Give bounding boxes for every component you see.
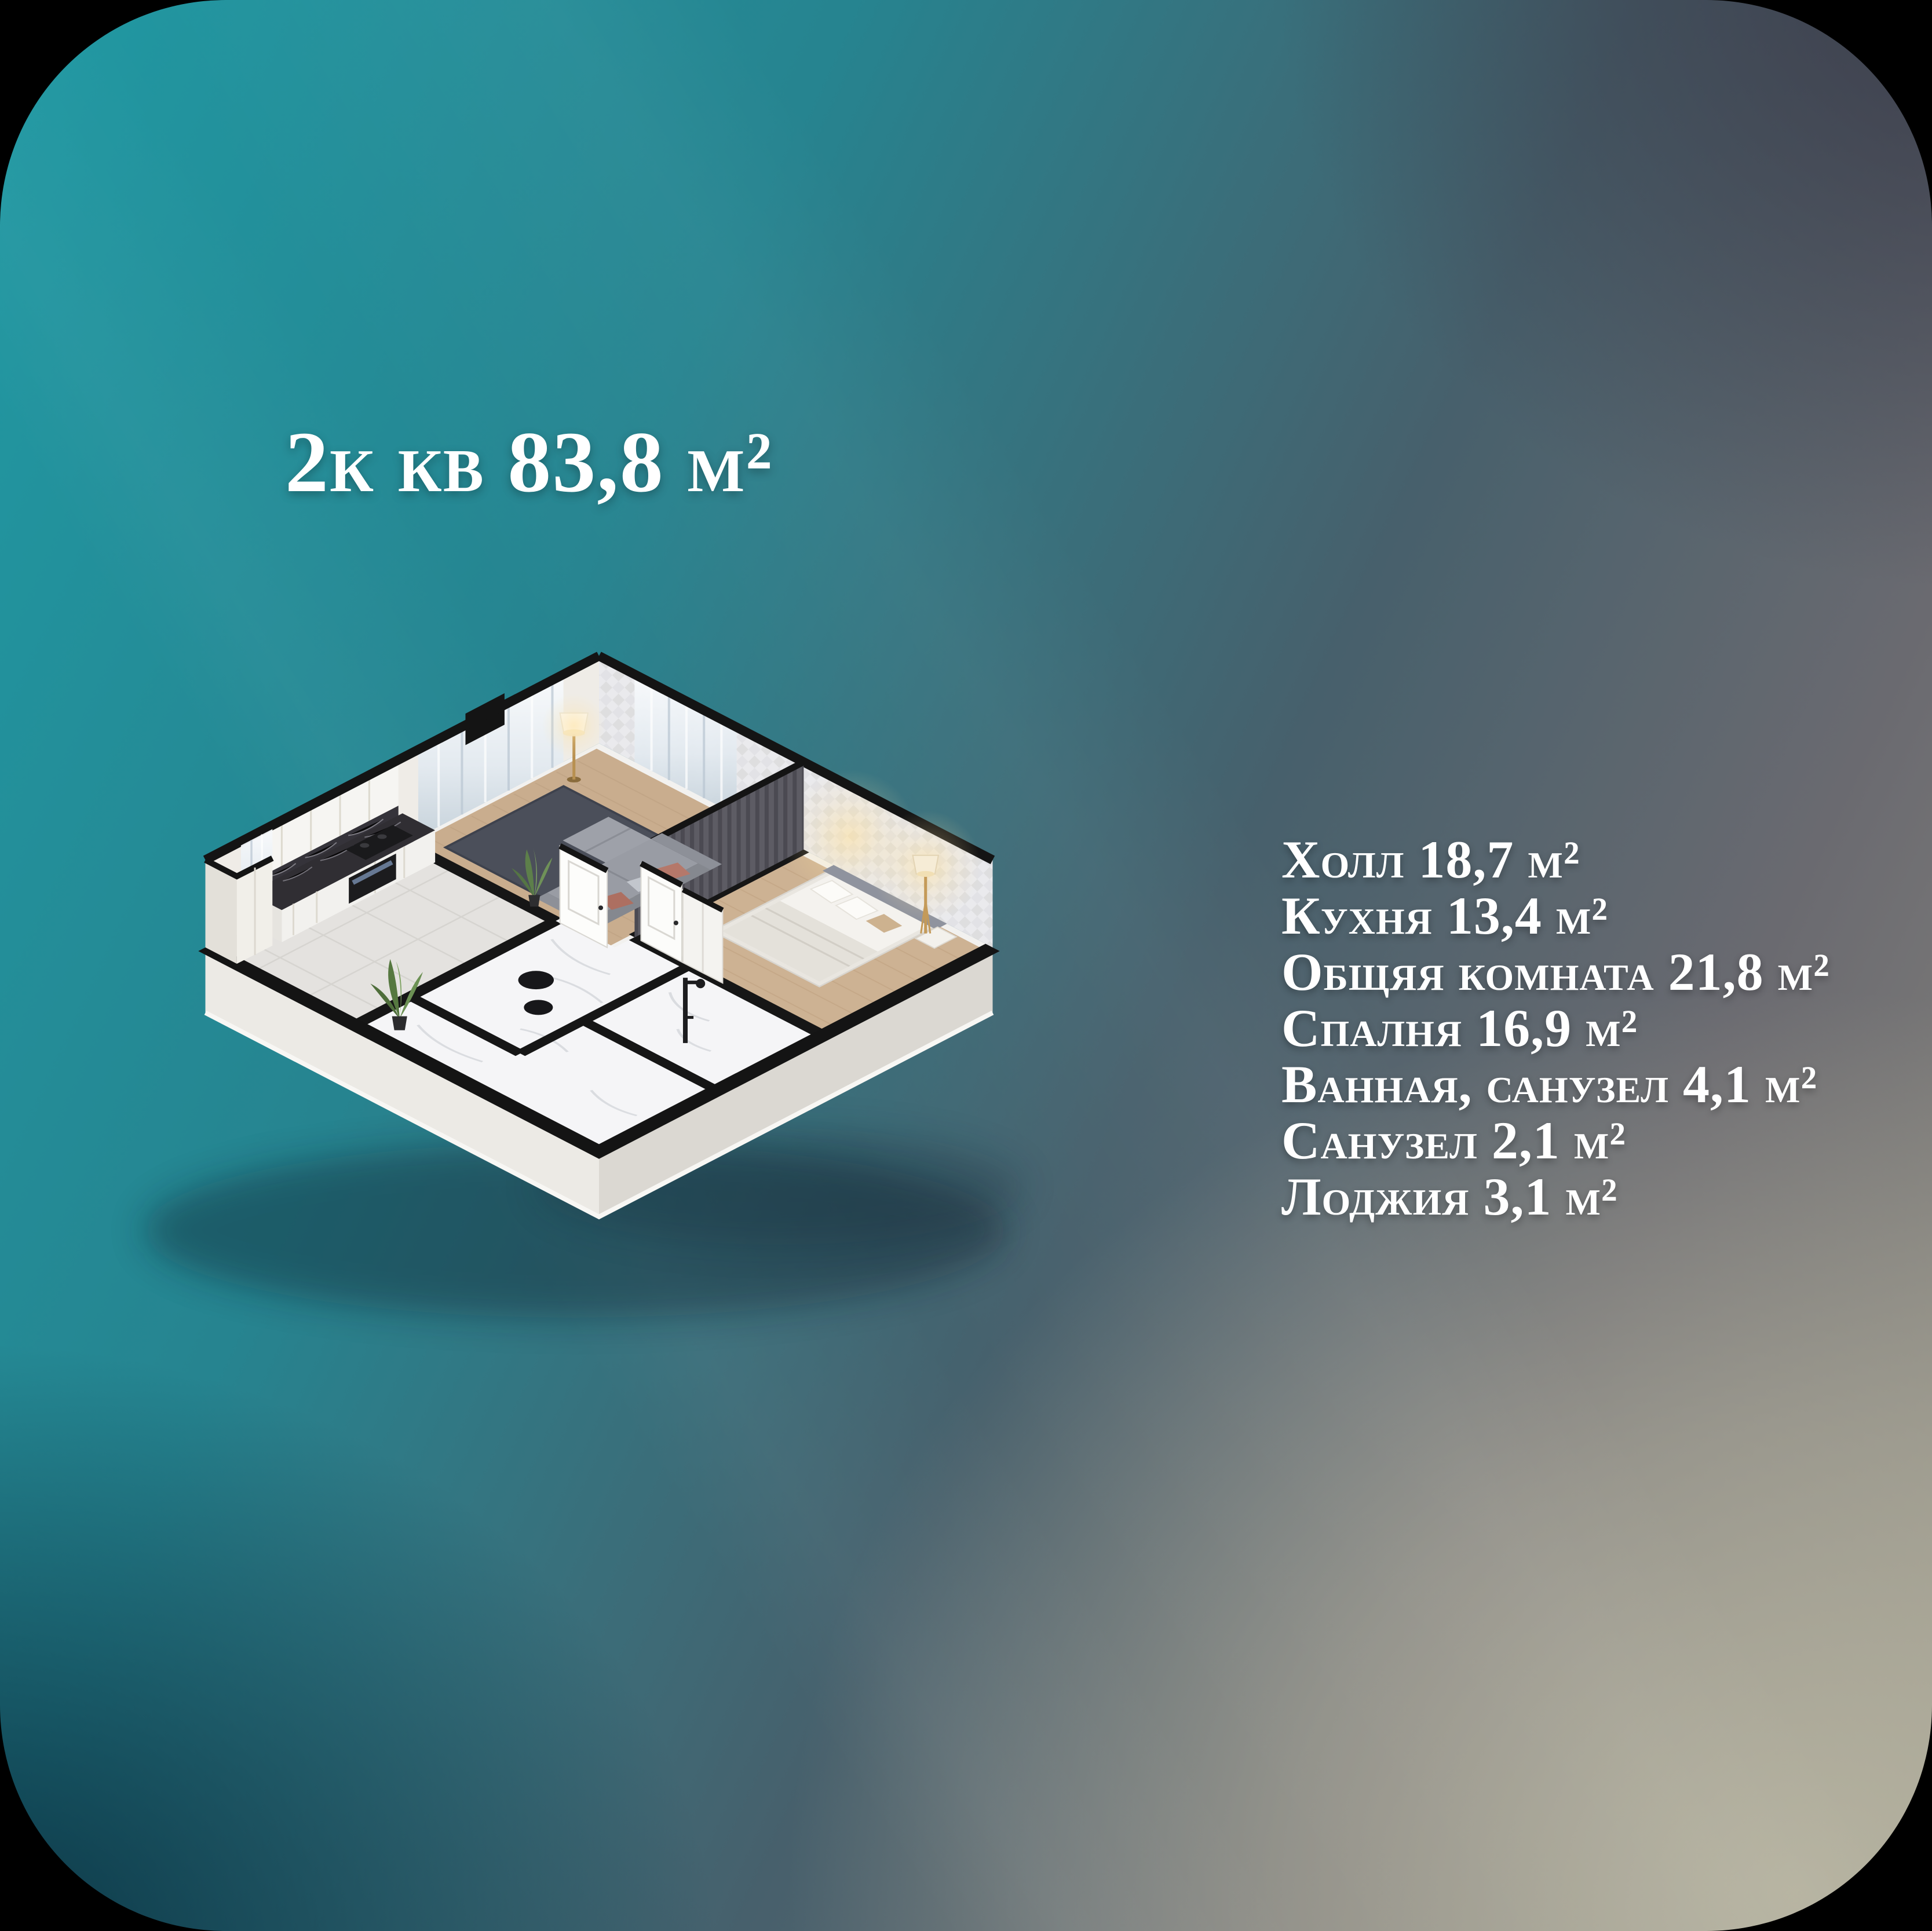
- room-list-item-kitchen: Кухня 13,4 м²: [1281, 888, 1830, 944]
- room-list-item-bedroom: Спалня 16,9 м²: [1281, 1000, 1830, 1056]
- room-list-item-common-room: Общяя комната 21,8 м²: [1281, 944, 1830, 1000]
- room-list-item-loggia: Лоджия 3,1 м²: [1281, 1169, 1830, 1225]
- room-list: Холл 18,7 м² Кухня 13,4 м² Общяя комната…: [1281, 832, 1830, 1225]
- floor-plan-svg: [74, 644, 1124, 1461]
- flyer-frame: 2к кв 83,8 м²: [0, 0, 1932, 1931]
- wardrobe: [206, 858, 273, 964]
- room-list-item-wc: Санузел 2,1 м²: [1281, 1113, 1830, 1169]
- flyer-card: 2к кв 83,8 м²: [0, 0, 1932, 1931]
- page-title: 2к кв 83,8 м²: [285, 412, 773, 513]
- room-list-item-bathroom: Ванная, санузел 4,1 м²: [1281, 1056, 1830, 1113]
- floor-plan-illustration: [74, 644, 1124, 1461]
- room-list-item-hall: Холл 18,7 м²: [1281, 832, 1830, 888]
